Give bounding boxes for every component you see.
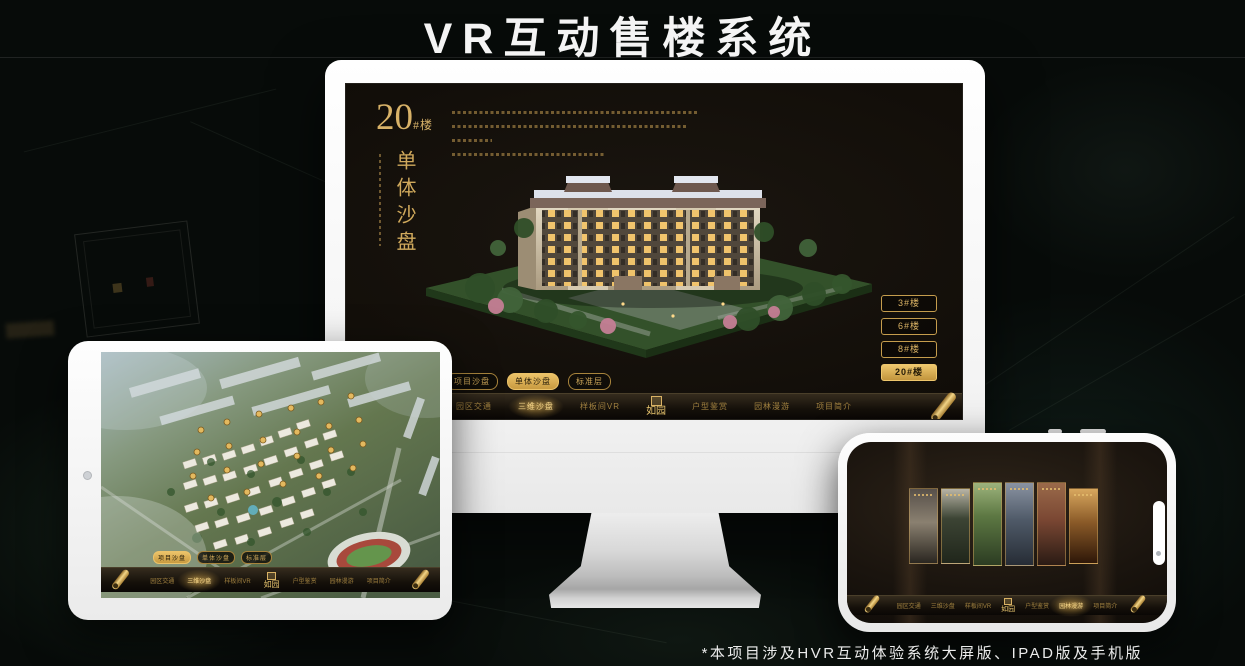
nav-item-garden-roam[interactable]: 园林漫游 bbox=[754, 401, 790, 412]
block-number: 20 bbox=[376, 97, 413, 138]
block-number-label: 20#楼 bbox=[376, 96, 433, 139]
logo-seal-icon bbox=[267, 572, 276, 580]
logo-text: 如园 bbox=[646, 407, 666, 417]
nav-item-traffic[interactable]: 园区交通 bbox=[456, 401, 492, 412]
tablet-view-tab-group: 项目沙盘 单体沙盘 标准层 bbox=[153, 551, 272, 564]
block-deco-line bbox=[379, 154, 381, 246]
bg-brand-emblem bbox=[6, 320, 55, 338]
phone-nav-item-3d-sandtable[interactable]: 三维沙盘 bbox=[931, 601, 955, 610]
floor-button-3[interactable]: 3#楼 bbox=[881, 295, 937, 312]
tablet-tab-standard-floor[interactable]: 标准层 bbox=[241, 551, 272, 564]
floor-button-8[interactable]: 8#楼 bbox=[881, 341, 937, 358]
tab-single-sandtable[interactable]: 单体沙盘 bbox=[507, 373, 559, 390]
scroll-handle-icon[interactable] bbox=[411, 568, 431, 590]
scene-gallery bbox=[909, 488, 1098, 566]
tablet-screen: 项目沙盘 单体沙盘 标准层 园区交通 三维沙盘 样板间VR 如园 户型鉴赏 园林… bbox=[101, 352, 440, 598]
logo-text: 如园 bbox=[1001, 606, 1015, 613]
nav-item-3d-sandtable[interactable]: 三维沙盘 bbox=[518, 401, 554, 412]
tablet-tab-single-sandtable[interactable]: 单体沙盘 bbox=[197, 551, 235, 564]
scroll-handle-icon[interactable] bbox=[1129, 594, 1146, 613]
phone-nav-item-traffic[interactable]: 园区交通 bbox=[897, 601, 921, 610]
footnote: *本项目涉及HVR互动体验系统大屏版、IPAD版及手机版 bbox=[702, 642, 1143, 663]
scene-card[interactable] bbox=[909, 488, 938, 564]
phone-nav-item-garden-roam[interactable]: 园林漫游 bbox=[1059, 601, 1083, 610]
tablet-nav-item-showroom-vr[interactable]: 样板间VR bbox=[224, 576, 250, 585]
floor-button-6[interactable]: 6#楼 bbox=[881, 318, 937, 335]
tablet-nav-item-project-intro[interactable]: 项目简介 bbox=[367, 576, 391, 585]
bg-road-line bbox=[985, 216, 1234, 385]
tablet-tab-project-sandtable[interactable]: 项目沙盘 bbox=[153, 551, 191, 564]
floor-button-group: 3#楼 6#楼 8#楼 20#楼 bbox=[881, 295, 937, 381]
tab-standard-floor[interactable]: 标准层 bbox=[568, 373, 611, 390]
scene-card[interactable] bbox=[973, 482, 1002, 566]
nav-item-project-intro[interactable]: 项目简介 bbox=[816, 401, 852, 412]
floor-button-20[interactable]: 20#楼 bbox=[881, 364, 937, 381]
phone-nav-item-project-intro[interactable]: 项目简介 bbox=[1093, 601, 1117, 610]
nav-item-unit-plans[interactable]: 户型鉴赏 bbox=[692, 401, 728, 412]
bg-road-line bbox=[1009, 290, 1245, 431]
block-unit: #楼 bbox=[413, 118, 433, 132]
building-3d-viewport[interactable] bbox=[418, 136, 884, 376]
phone-camera-icon bbox=[1156, 551, 1161, 556]
tablet-camera-icon bbox=[83, 471, 92, 480]
view-tab-group: 项目沙盘 单体沙盘 标准层 bbox=[446, 373, 611, 390]
monitor-stand bbox=[549, 513, 761, 608]
logo-seal-icon bbox=[651, 396, 662, 406]
scroll-handle-icon[interactable] bbox=[863, 594, 880, 613]
page-title: VR互动售楼系统 bbox=[0, 4, 1245, 66]
scroll-handle-icon[interactable] bbox=[111, 568, 131, 590]
scene-card[interactable] bbox=[1005, 482, 1034, 566]
block-subtitle: 单体沙盘 bbox=[390, 150, 419, 258]
bg-glow-topright bbox=[975, 60, 1245, 280]
phone-screen: 园区交通 三维沙盘 样板间VR 如园 户型鉴赏 园林漫游 项目简介 bbox=[847, 442, 1167, 623]
phone-nav-item-showroom-vr[interactable]: 样板间VR bbox=[965, 601, 991, 610]
bg-certificate-plaque bbox=[74, 220, 200, 337]
scroll-handle-icon[interactable] bbox=[929, 391, 957, 420]
phone-nav-item-unit-plans[interactable]: 户型鉴赏 bbox=[1025, 601, 1049, 610]
logo-seal-icon bbox=[1004, 598, 1012, 605]
tablet-nav-item-3d-sandtable[interactable]: 三维沙盘 bbox=[187, 576, 211, 585]
scene-card[interactable] bbox=[1069, 488, 1098, 564]
phone-navbar: 园区交通 三维沙盘 样板间VR 如园 户型鉴赏 园林漫游 项目简介 bbox=[847, 595, 1167, 615]
scene-card[interactable] bbox=[941, 488, 970, 564]
scene-card[interactable] bbox=[1037, 482, 1066, 566]
tablet-nav-item-garden-roam[interactable]: 园林漫游 bbox=[330, 576, 354, 585]
brand-logo: 如园 bbox=[646, 396, 666, 417]
tablet-nav-item-traffic[interactable]: 园区交通 bbox=[150, 576, 174, 585]
nav-item-showroom-vr[interactable]: 样板间VR bbox=[580, 401, 620, 412]
poster: VR互动售楼系统 20#楼 单体沙盘 bbox=[0, 0, 1245, 666]
tablet-nav-item-unit-plans[interactable]: 户型鉴赏 bbox=[293, 576, 317, 585]
tablet-brand-logo: 如园 bbox=[264, 572, 280, 589]
phone-brand-logo: 如园 bbox=[1001, 598, 1015, 613]
tab-project-sandtable[interactable]: 项目沙盘 bbox=[446, 373, 498, 390]
logo-text: 如园 bbox=[264, 581, 280, 589]
tablet-navbar: 园区交通 三维沙盘 样板间VR 如园 户型鉴赏 园林漫游 项目简介 bbox=[101, 567, 440, 592]
